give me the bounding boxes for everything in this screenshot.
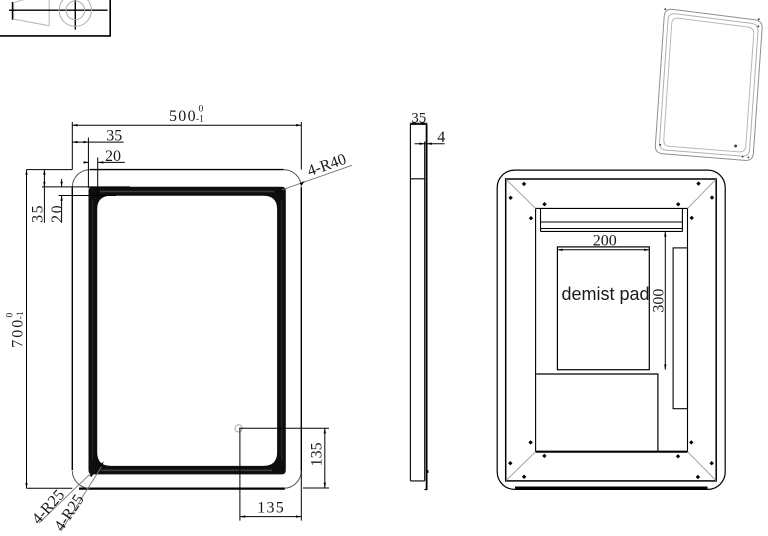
svg-text:35: 35: [30, 204, 47, 223]
svg-text:0: 0: [199, 105, 204, 115]
svg-text:4: 4: [437, 129, 445, 146]
svg-text:35: 35: [106, 127, 122, 144]
svg-text:135: 135: [308, 442, 325, 466]
svg-text:20: 20: [105, 148, 121, 165]
svg-text:700: 700: [10, 318, 27, 348]
svg-text:300: 300: [650, 289, 667, 313]
svg-text:500: 500: [169, 108, 197, 125]
svg-text:20: 20: [49, 204, 66, 223]
svg-text:demist pad: demist pad: [562, 284, 650, 304]
svg-text:35: 35: [411, 111, 426, 127]
svg-text:-1: -1: [16, 311, 26, 319]
svg-text:0: 0: [6, 313, 16, 318]
svg-text:200: 200: [593, 232, 617, 249]
svg-text:-1: -1: [196, 115, 204, 125]
svg-text:135: 135: [257, 500, 285, 517]
